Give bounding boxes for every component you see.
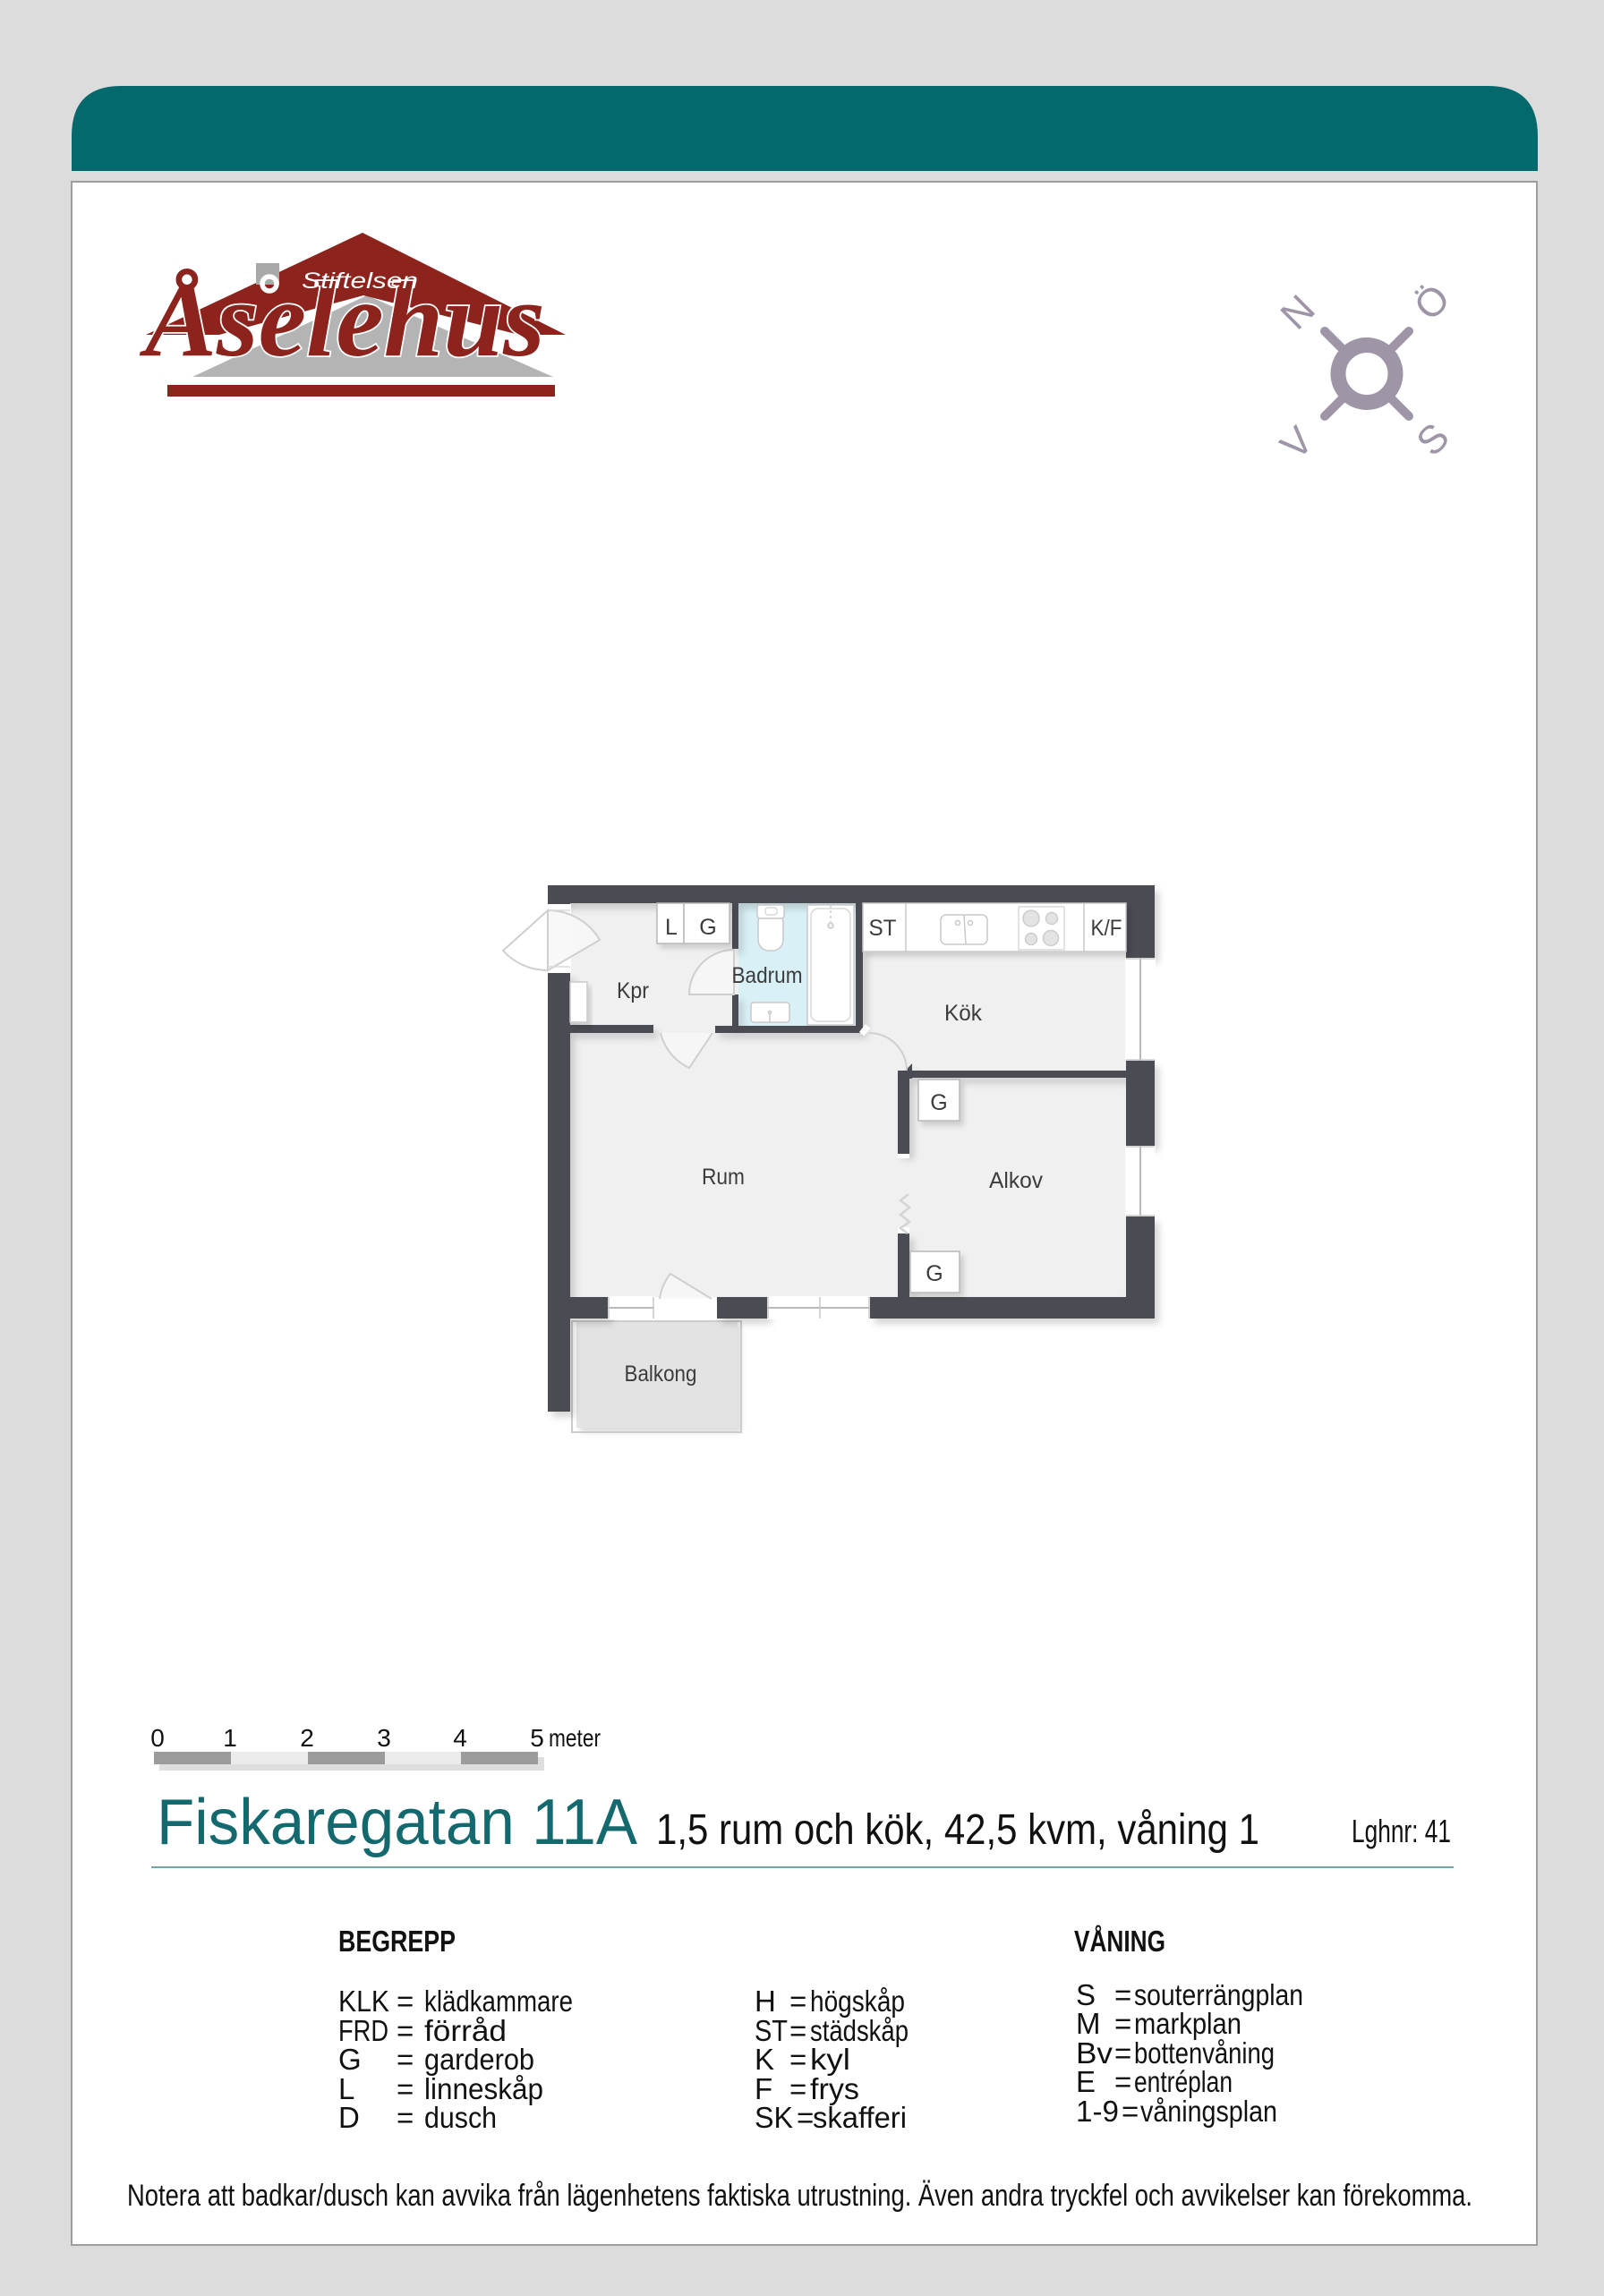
svg-text:KLK: KLK	[338, 1984, 389, 2018]
svg-text:=: =	[789, 2043, 806, 2076]
svg-text:G: G	[930, 1090, 947, 1115]
svg-text:Kök: Kök	[944, 1001, 982, 1026]
svg-text:G: G	[338, 2043, 362, 2076]
svg-text:D: D	[338, 2101, 360, 2134]
svg-text:SK: SK	[755, 2101, 793, 2134]
svg-text:=: =	[1122, 2095, 1139, 2128]
svg-text:VÅNING: VÅNING	[1074, 1925, 1165, 1958]
svg-text:0: 0	[150, 1724, 165, 1752]
svg-text:Fiskaregatan 11A: Fiskaregatan 11A	[157, 1787, 637, 1858]
svg-text:garderob: garderob	[424, 2043, 534, 2076]
svg-text:klädkammare: klädkammare	[424, 1984, 573, 2018]
svg-text:H: H	[755, 1984, 776, 2018]
svg-text:våningsplan: våningsplan	[1140, 2095, 1277, 2128]
svg-text:Kpr: Kpr	[617, 978, 649, 1003]
svg-text:E: E	[1076, 2065, 1096, 2098]
svg-text:G: G	[699, 915, 716, 940]
svg-text:=: =	[397, 1984, 414, 2018]
svg-text:L: L	[665, 915, 678, 940]
svg-text:=: =	[789, 1984, 806, 2018]
svg-text:Alkov: Alkov	[989, 1168, 1043, 1193]
svg-text:Balkong: Balkong	[625, 1361, 697, 1387]
svg-text:=: =	[1114, 2007, 1131, 2040]
svg-text:meter: meter	[549, 1724, 601, 1752]
svg-text:Lghnr: 41: Lghnr: 41	[1352, 1813, 1451, 1849]
svg-text:markplan: markplan	[1134, 2007, 1241, 2040]
svg-text:M: M	[1076, 2007, 1101, 2040]
svg-text:1-9: 1-9	[1076, 2095, 1119, 2128]
svg-text:1,5 rum och kök, 42,5 kvm, vån: 1,5 rum och kök, 42,5 kvm, våning 1	[656, 1806, 1259, 1854]
svg-text:BEGREPP: BEGREPP	[338, 1925, 456, 1958]
svg-text:G: G	[926, 1261, 943, 1286]
svg-text:K/F: K/F	[1091, 916, 1122, 941]
svg-text:Stiftelsen: Stiftelsen	[302, 269, 418, 294]
svg-text:ST: ST	[869, 916, 897, 941]
svg-text:dusch: dusch	[424, 2101, 497, 2134]
svg-text:2: 2	[300, 1724, 314, 1752]
svg-text:högskåp: högskåp	[810, 1984, 905, 2018]
svg-text:=: =	[397, 2043, 414, 2076]
svg-text:1: 1	[223, 1724, 237, 1752]
svg-text:=: =	[397, 2101, 414, 2134]
svg-text:kyl: kyl	[810, 2043, 850, 2076]
svg-text:K: K	[755, 2043, 774, 2076]
svg-text:3: 3	[377, 1724, 391, 1752]
svg-text:Notera att badkar/dusch kan av: Notera att badkar/dusch kan avvika från …	[127, 2179, 1472, 2213]
svg-text:=: =	[1114, 2065, 1131, 2098]
svg-text:Badrum: Badrum	[732, 963, 803, 988]
svg-text:=: =	[797, 2101, 814, 2134]
svg-text:5: 5	[530, 1724, 544, 1752]
svg-text:Rum: Rum	[702, 1165, 745, 1190]
svg-text:entréplan: entréplan	[1134, 2065, 1233, 2098]
svg-text:4: 4	[453, 1724, 467, 1752]
svg-text:skafferi: skafferi	[813, 2101, 907, 2134]
